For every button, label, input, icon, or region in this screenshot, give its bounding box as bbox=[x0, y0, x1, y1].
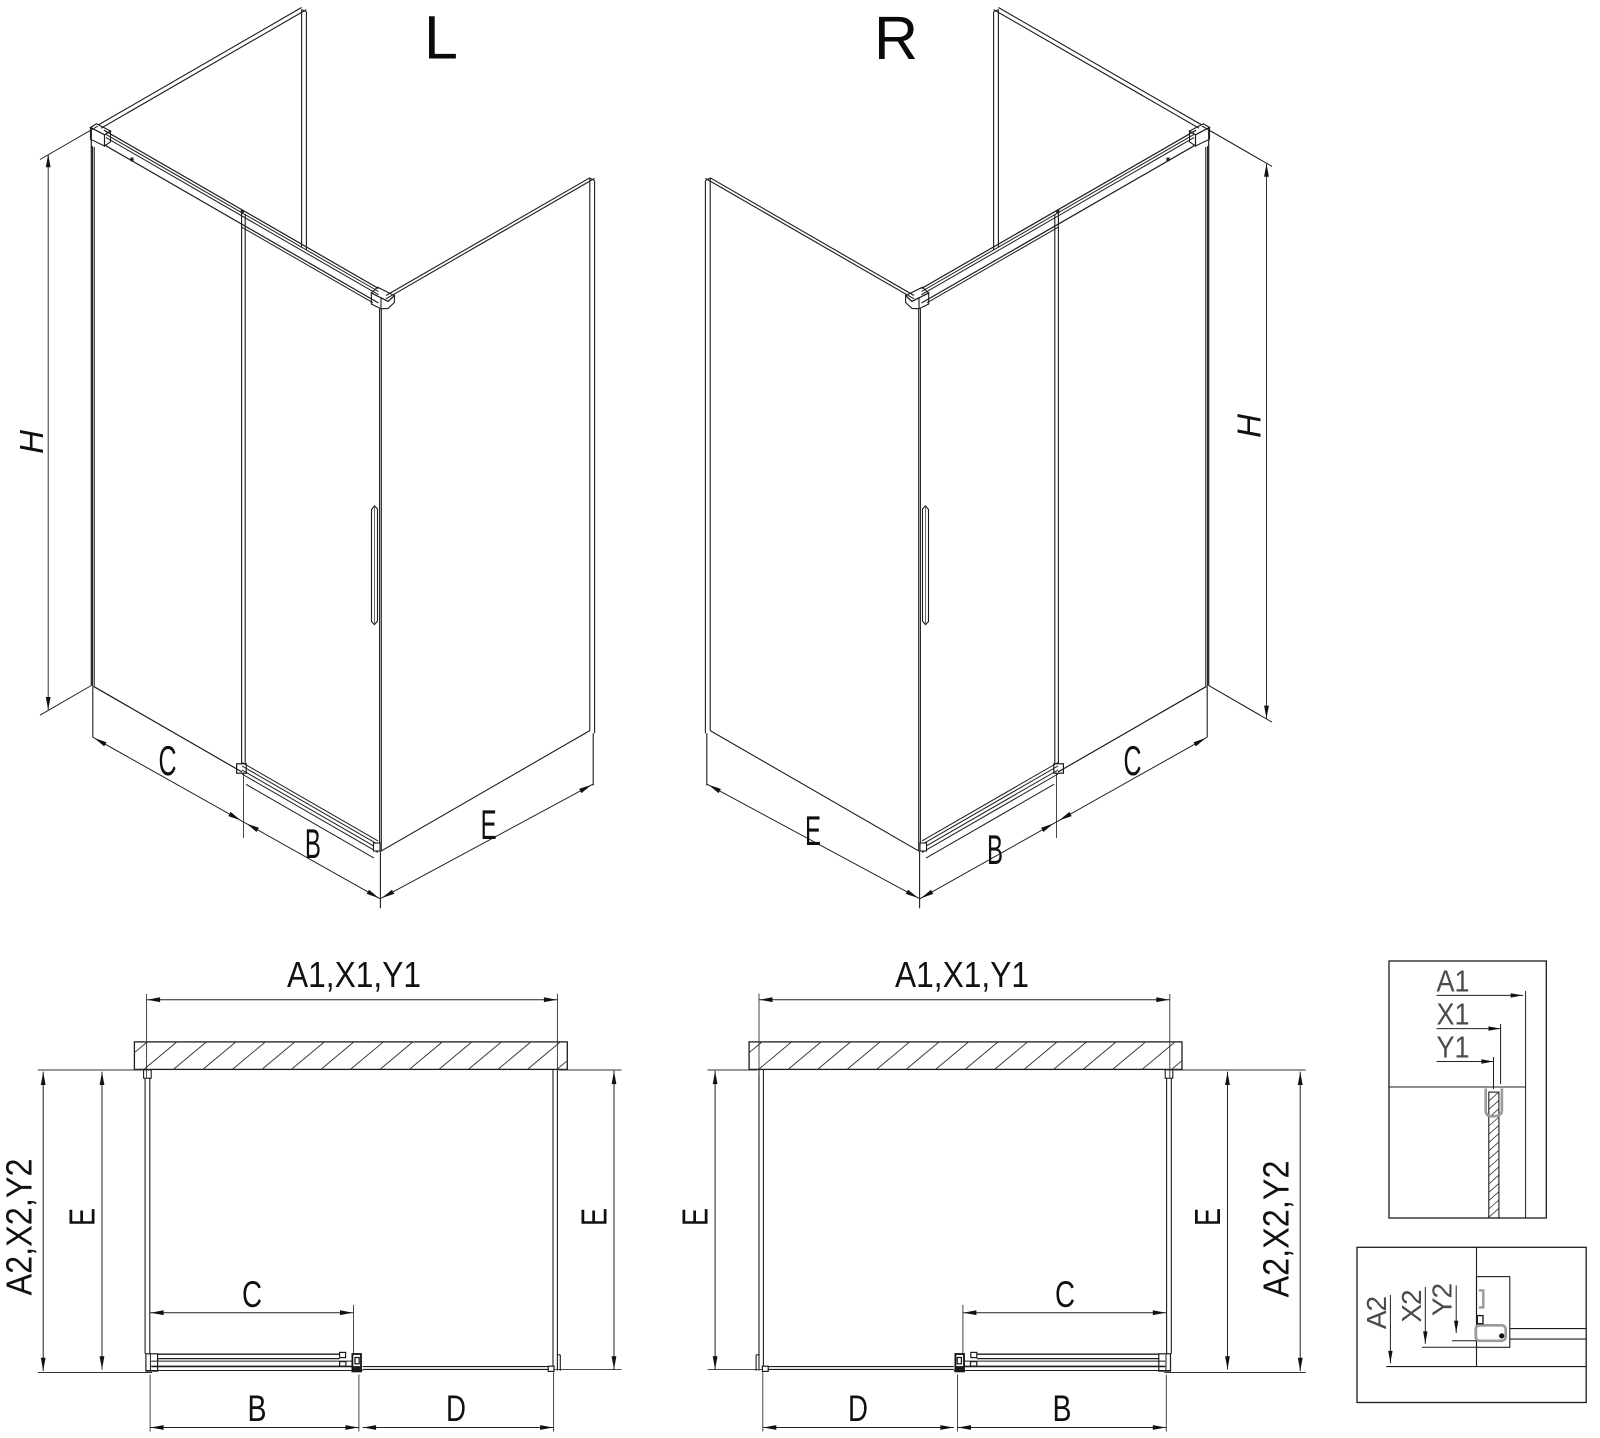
svg-text:E: E bbox=[481, 801, 497, 848]
svg-text:Y1: Y1 bbox=[1437, 1030, 1470, 1065]
svg-text:H: H bbox=[1231, 414, 1268, 438]
svg-text:B: B bbox=[248, 1388, 267, 1429]
svg-text:Y2: Y2 bbox=[1427, 1283, 1458, 1316]
svg-text:H: H bbox=[13, 430, 50, 454]
svg-text:C: C bbox=[242, 1274, 262, 1315]
svg-text:E: E bbox=[573, 1208, 614, 1226]
svg-text:E: E bbox=[1187, 1208, 1228, 1226]
svg-text:A2: A2 bbox=[1361, 1296, 1392, 1329]
svg-text:B: B bbox=[305, 820, 321, 867]
svg-text:E: E bbox=[805, 807, 821, 854]
svg-text:A1,X1,Y1: A1,X1,Y1 bbox=[895, 954, 1029, 995]
svg-text:D: D bbox=[446, 1388, 466, 1429]
svg-text:A1,X1,Y1: A1,X1,Y1 bbox=[287, 954, 421, 995]
svg-text:C: C bbox=[1124, 737, 1142, 784]
svg-text:B: B bbox=[987, 826, 1003, 873]
svg-text:C: C bbox=[159, 737, 177, 784]
svg-text:D: D bbox=[848, 1388, 868, 1429]
svg-text:C: C bbox=[1055, 1274, 1075, 1315]
svg-text:E: E bbox=[61, 1208, 102, 1226]
svg-text:X1: X1 bbox=[1437, 997, 1470, 1032]
svg-text:B: B bbox=[1053, 1388, 1072, 1429]
svg-text:L: L bbox=[424, 4, 458, 72]
svg-text:R: R bbox=[874, 4, 918, 72]
svg-text:E: E bbox=[675, 1208, 716, 1226]
svg-text:A1: A1 bbox=[1437, 964, 1470, 999]
svg-text:X2: X2 bbox=[1396, 1290, 1427, 1323]
svg-text:A2,X2,Y2: A2,X2,Y2 bbox=[1255, 1161, 1296, 1298]
svg-text:A2,X2,Y2: A2,X2,Y2 bbox=[0, 1159, 39, 1296]
